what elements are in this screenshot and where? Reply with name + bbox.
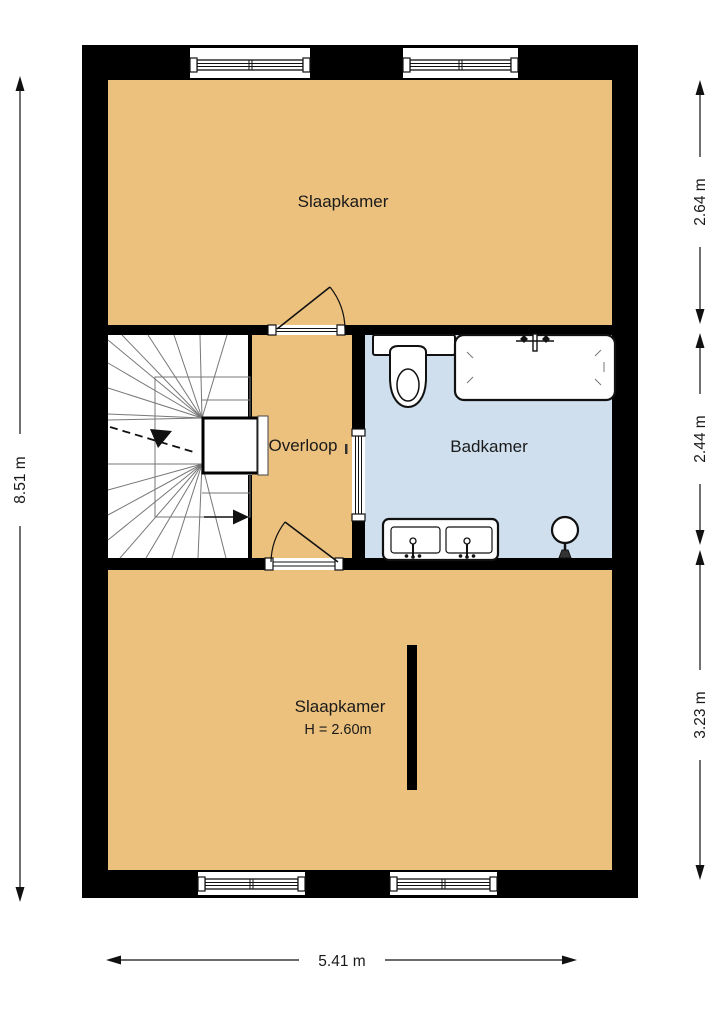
landing-label: Overloop (269, 436, 338, 455)
dimension-middle-section: 2.44 m (689, 333, 711, 545)
dimension-total-height-label: 8.51 m (12, 456, 29, 503)
bedroom-top-label: Slaapkamer (298, 192, 389, 211)
dimension-bottom-section: 3.23 m (689, 550, 711, 880)
dimension-top-section: 2.64 m (689, 80, 711, 324)
bathtub-icon (455, 334, 615, 400)
stair-landing-strip (258, 416, 268, 475)
floorplan-canvas: Slaapkamer Overloop Badkamer Slaapkamer … (0, 0, 720, 1017)
bedroom-bottom-label: Slaapkamer (295, 697, 386, 716)
dimension-middle-section-label: 2.44 m (692, 415, 709, 462)
dimension-total-height: 8.51 m (9, 76, 31, 902)
dimension-bottom-section-label: 3.23 m (692, 691, 709, 738)
window-bottom-right (390, 872, 497, 895)
floorplan-page: Slaapkamer Overloop Badkamer Slaapkamer … (0, 0, 720, 1017)
bathroom-label: Badkamer (450, 437, 528, 456)
bedroom-partition-wall (407, 645, 417, 790)
door-mark (345, 444, 348, 454)
dimension-top-section-label: 2.64 m (692, 178, 709, 225)
stair-landing-box (203, 418, 258, 473)
vanity-double-sink-icon (383, 519, 498, 560)
dimension-total-width-label: 5.41 m (318, 953, 365, 970)
dimension-total-width: 5.41 m (106, 947, 577, 973)
window-top-left (190, 48, 310, 78)
window-top-right (403, 48, 518, 78)
bedroom-bottom-floor (108, 570, 612, 870)
bedroom-bottom-height-note: H = 2.60m (304, 722, 371, 738)
window-bottom-left (198, 872, 305, 895)
